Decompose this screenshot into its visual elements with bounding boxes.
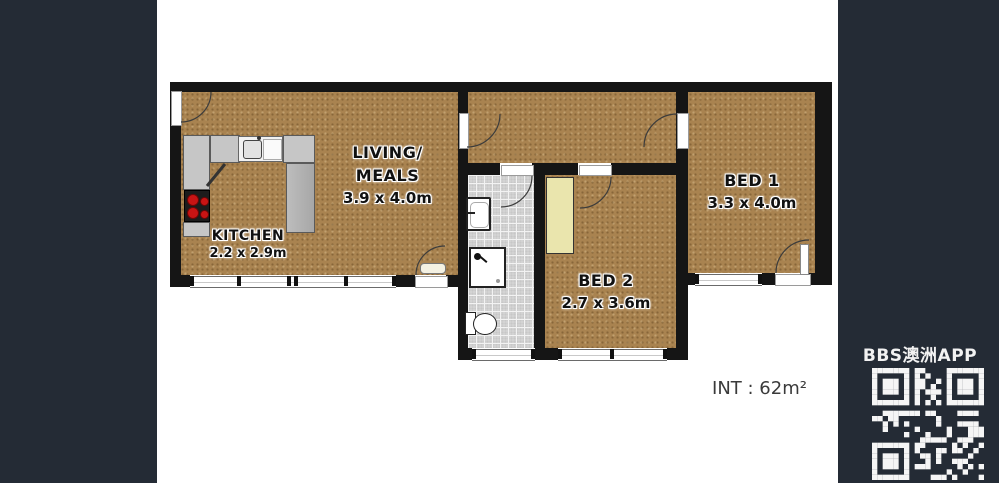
- burner-icon: [187, 207, 199, 219]
- wardrobe-icon: [546, 177, 574, 254]
- wall-hall-seg: [611, 163, 688, 175]
- sink-tap-icon: [257, 136, 261, 140]
- floor-hallway: [468, 92, 676, 163]
- wall-right: [815, 82, 832, 285]
- window-tick: [610, 349, 614, 359]
- sink-bowl-icon: [243, 140, 262, 159]
- burner-icon: [200, 210, 209, 219]
- door-leaf-balcony-living: [420, 263, 446, 274]
- wall-bottom-seg: [458, 348, 472, 360]
- kitchen-counter: [183, 135, 210, 190]
- window-tick: [237, 276, 241, 286]
- label-bed2: BED 2 2.7 x 3.6m: [545, 269, 667, 314]
- bed2-dims: 2.7 x 3.6m: [545, 292, 667, 314]
- window-tick: [695, 274, 699, 284]
- kitchen-counter: [210, 135, 240, 163]
- door-opening-bed1: [677, 113, 689, 149]
- wall-bottom-seg: [667, 348, 688, 360]
- living-name-line2: MEALS: [300, 164, 475, 187]
- shower-drain-icon: [496, 279, 500, 283]
- window-tick: [663, 349, 667, 359]
- label-living: LIVING/ MEALS 3.9 x 4.0m: [300, 141, 475, 209]
- door-opening-bed2: [579, 165, 612, 176]
- kitchen-dims: 2.2 x 2.9m: [190, 245, 306, 262]
- wall-bottom-seg: [676, 273, 695, 285]
- sink-drainer-icon: [263, 139, 282, 160]
- bed1-dims: 3.3 x 4.0m: [693, 192, 811, 214]
- window-tick: [294, 276, 298, 286]
- door-opening-balcony-living: [415, 276, 448, 288]
- window-tick: [472, 349, 476, 359]
- internal-area-label: INT : 62m²: [687, 378, 832, 399]
- watermark-app-name: BBS澳洲APP: [845, 341, 995, 366]
- wall-bottom-seg: [396, 275, 415, 287]
- window-bed1: [695, 274, 762, 286]
- window-tick: [344, 276, 348, 286]
- label-kitchen: KITCHEN 2.2 x 2.9m: [190, 227, 306, 262]
- window-tick: [190, 276, 194, 286]
- qr-code: [872, 368, 984, 480]
- basin-tap-icon: [466, 212, 475, 214]
- living-dims: 3.9 x 4.0m: [300, 187, 475, 209]
- window-bathroom: [472, 349, 535, 361]
- burner-icon: [187, 194, 199, 206]
- kitchen-name: KITCHEN: [190, 227, 306, 245]
- door-opening-balcony-bed1: [775, 274, 811, 286]
- window-tick: [558, 349, 562, 359]
- window-tick: [287, 276, 291, 286]
- wall-top: [170, 82, 832, 92]
- floorplan-screenshot: LIVING/ MEALS 3.9 x 4.0m KITCHEN 2.2 x 2…: [0, 0, 999, 483]
- window-tick: [758, 274, 762, 284]
- wall-bottom-seg: [446, 275, 468, 287]
- wall-bath-bed2: [534, 175, 545, 348]
- door-leaf-balcony-bed1: [800, 244, 809, 275]
- toilet-bowl-icon: [473, 313, 497, 335]
- bed2-name: BED 2: [545, 269, 667, 292]
- wall-hall-seg: [532, 163, 578, 175]
- burner-icon: [200, 197, 209, 206]
- wall-bottom-seg: [809, 273, 832, 285]
- window-tick: [392, 276, 396, 286]
- window-tick: [531, 349, 535, 359]
- wall-bottom-seg: [762, 273, 775, 285]
- wall-bottom-seg: [535, 348, 558, 360]
- bed1-name: BED 1: [693, 169, 811, 192]
- wall-bottom-seg: [170, 275, 190, 287]
- label-bed1: BED 1 3.3 x 4.0m: [693, 169, 811, 214]
- door-opening-entry: [171, 91, 182, 126]
- living-name-line1: LIVING/: [300, 141, 475, 164]
- door-opening-bathroom: [501, 165, 534, 176]
- window-living: [190, 276, 396, 288]
